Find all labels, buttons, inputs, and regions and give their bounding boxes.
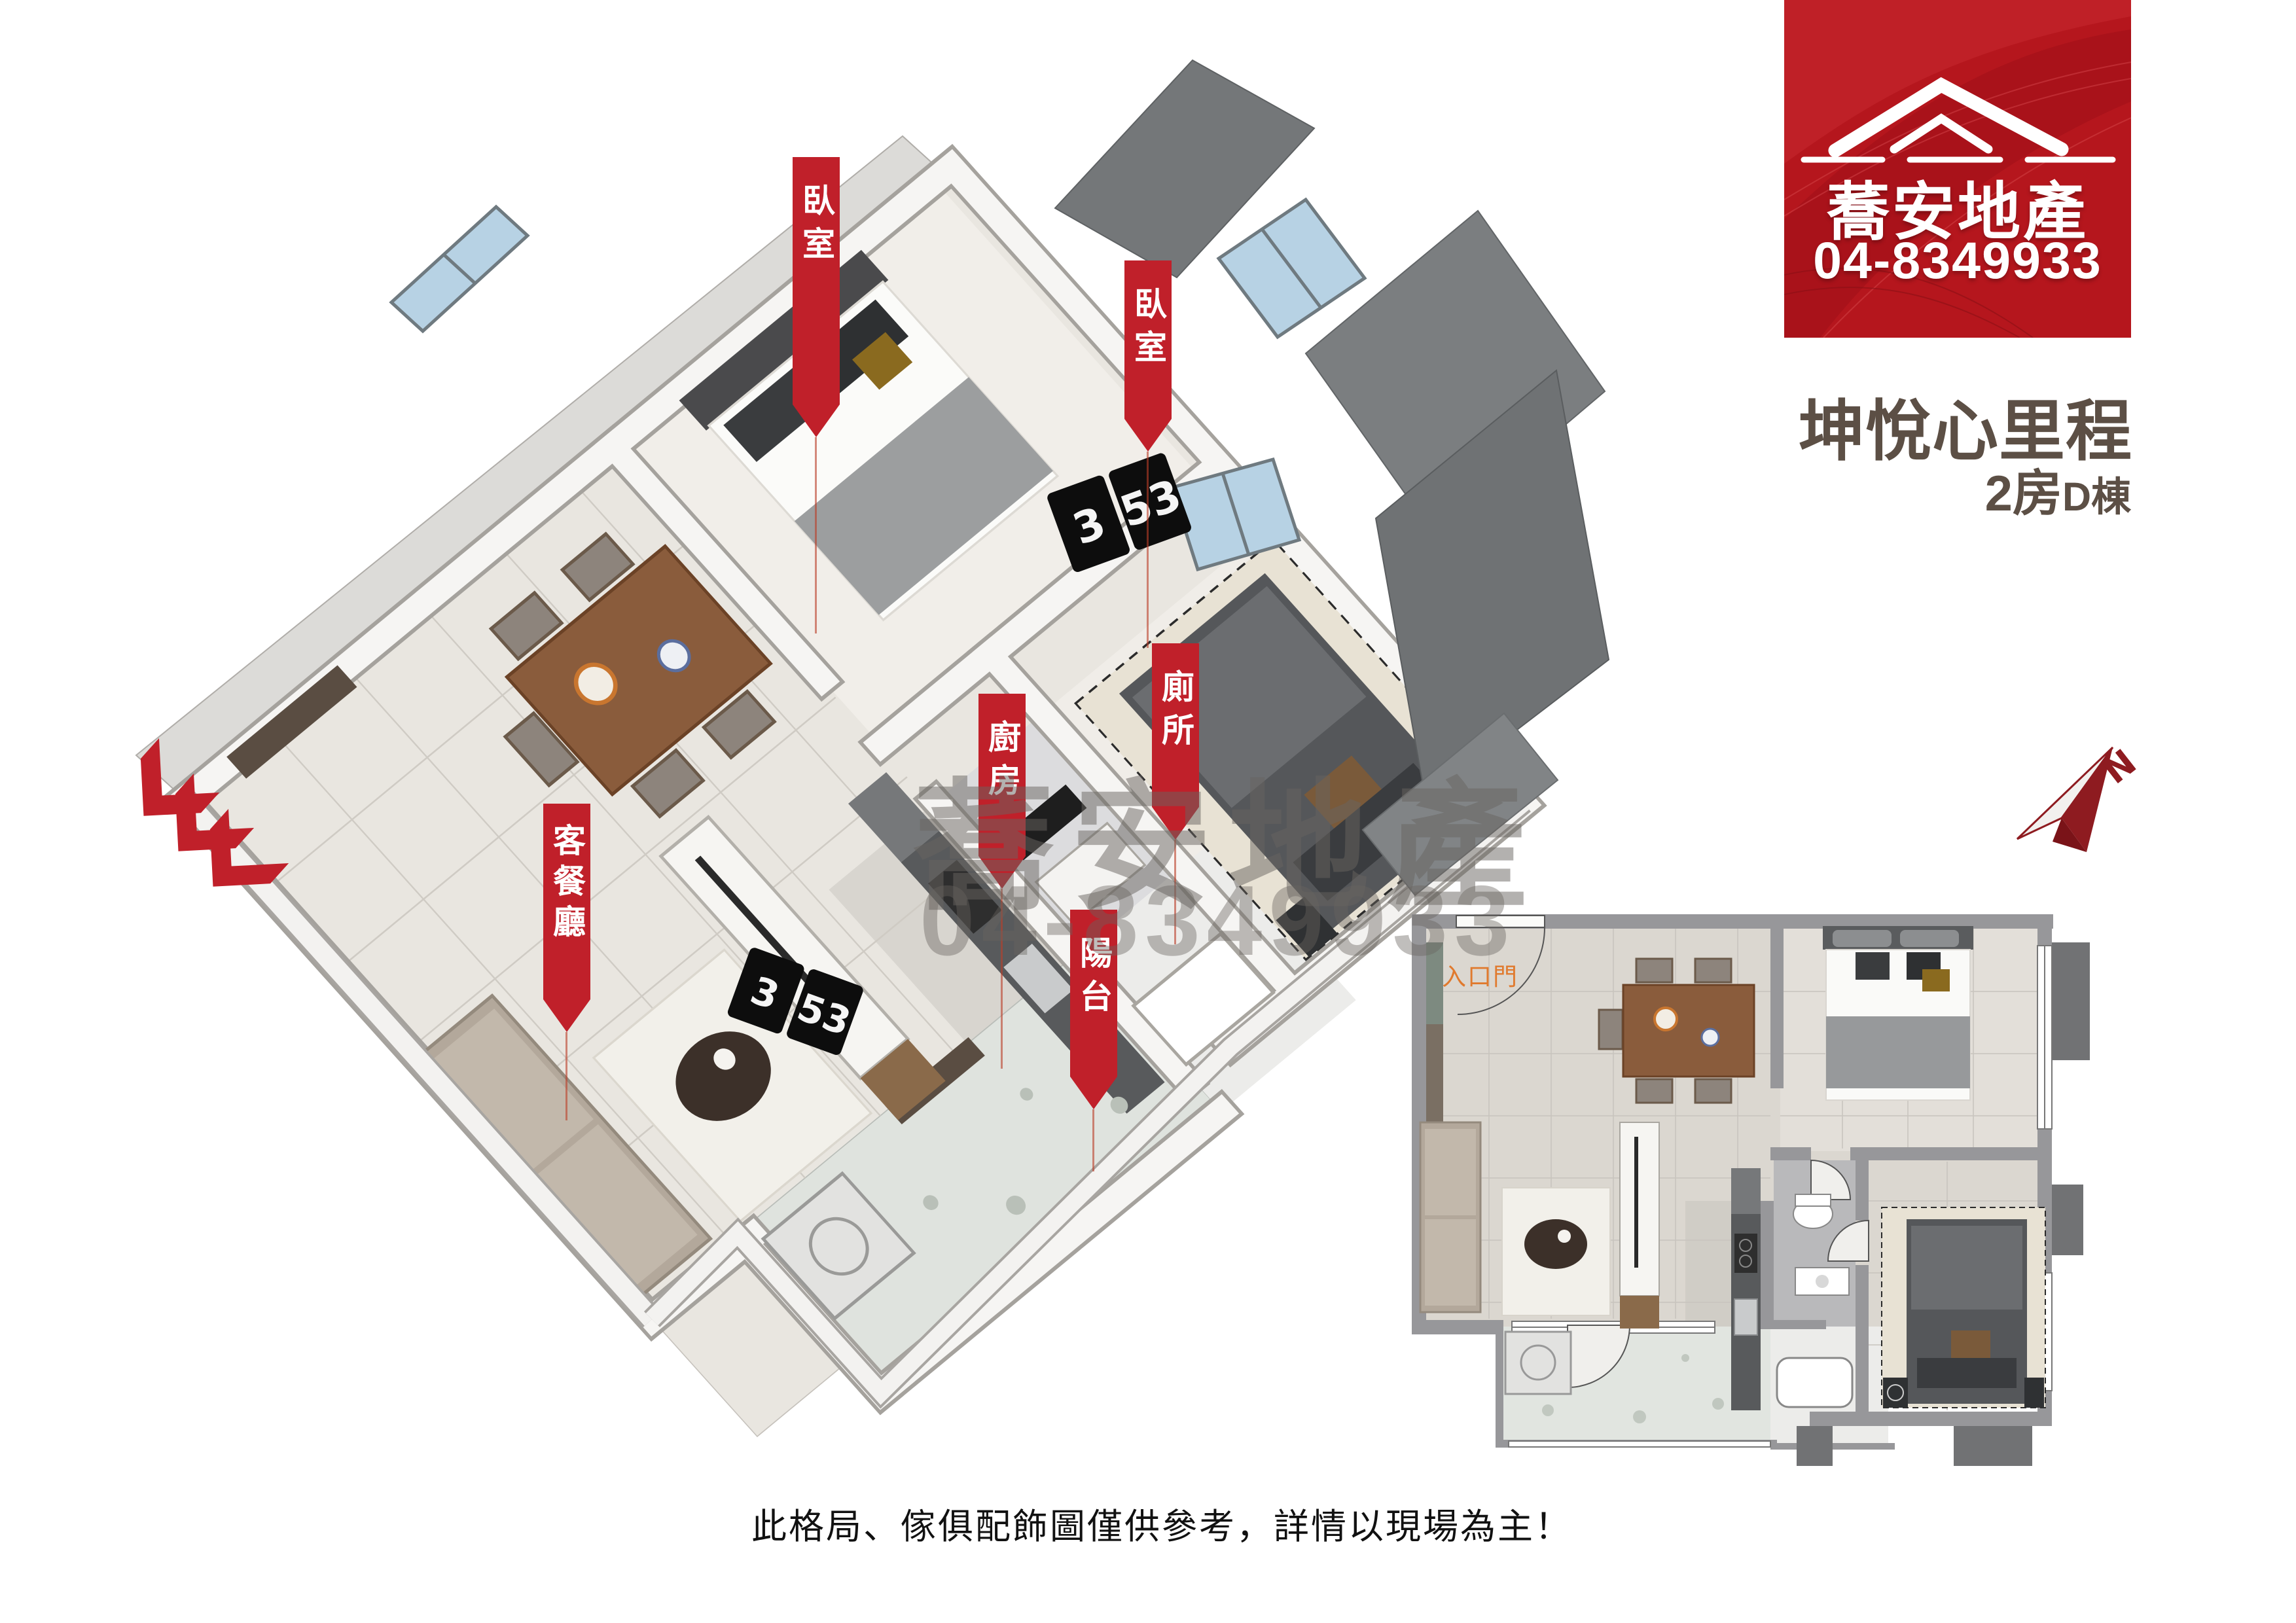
kitchen-2d xyxy=(1731,1168,1761,1410)
leader-line xyxy=(565,1032,567,1120)
disclaimer-text: 此格局、傢俱配飾圖僅供參考，詳情以現場為主！ xyxy=(720,1497,1604,1549)
leader-line xyxy=(1147,452,1149,648)
floorplan-2d: 入口門 xyxy=(1404,906,2098,1466)
leader-line xyxy=(1174,840,1176,944)
logo-phone-number: 04-8349933 xyxy=(1784,230,2131,291)
banner-balcony: 陽台 xyxy=(1070,910,1117,1109)
leader-line xyxy=(1092,1109,1094,1171)
banner-toilet: 廁所 xyxy=(1152,643,1199,840)
project-layout: 2房 xyxy=(1985,466,2062,522)
sofa-2d xyxy=(1420,1122,1480,1312)
banner-bedroom-2: 臥室 xyxy=(1124,260,1172,452)
banner-living-dining: 客餐廳 xyxy=(543,804,590,1032)
tv-console-2d xyxy=(1620,1122,1659,1329)
flyer-canvas: 3 53 3 53 N xyxy=(0,0,2296,1623)
project-building: D棟 xyxy=(2062,474,2131,519)
leader-line xyxy=(815,437,817,633)
compass-icon: N xyxy=(2017,741,2144,852)
entrance-label: 入口門 xyxy=(1442,963,1518,990)
brand-logo-card: 蕎安地產 04-8349933 xyxy=(1784,0,2131,338)
washer-2d xyxy=(1505,1332,1571,1394)
leader-line xyxy=(1001,889,1003,1069)
bed-2-2d xyxy=(1882,1207,2045,1408)
banner-kitchen: 廚房 xyxy=(978,694,1026,889)
banner-bedroom-1: 臥室 xyxy=(793,157,840,437)
project-subtitle: 2房D棟 xyxy=(1799,453,2131,525)
bed-1-2d xyxy=(1823,926,1973,1100)
